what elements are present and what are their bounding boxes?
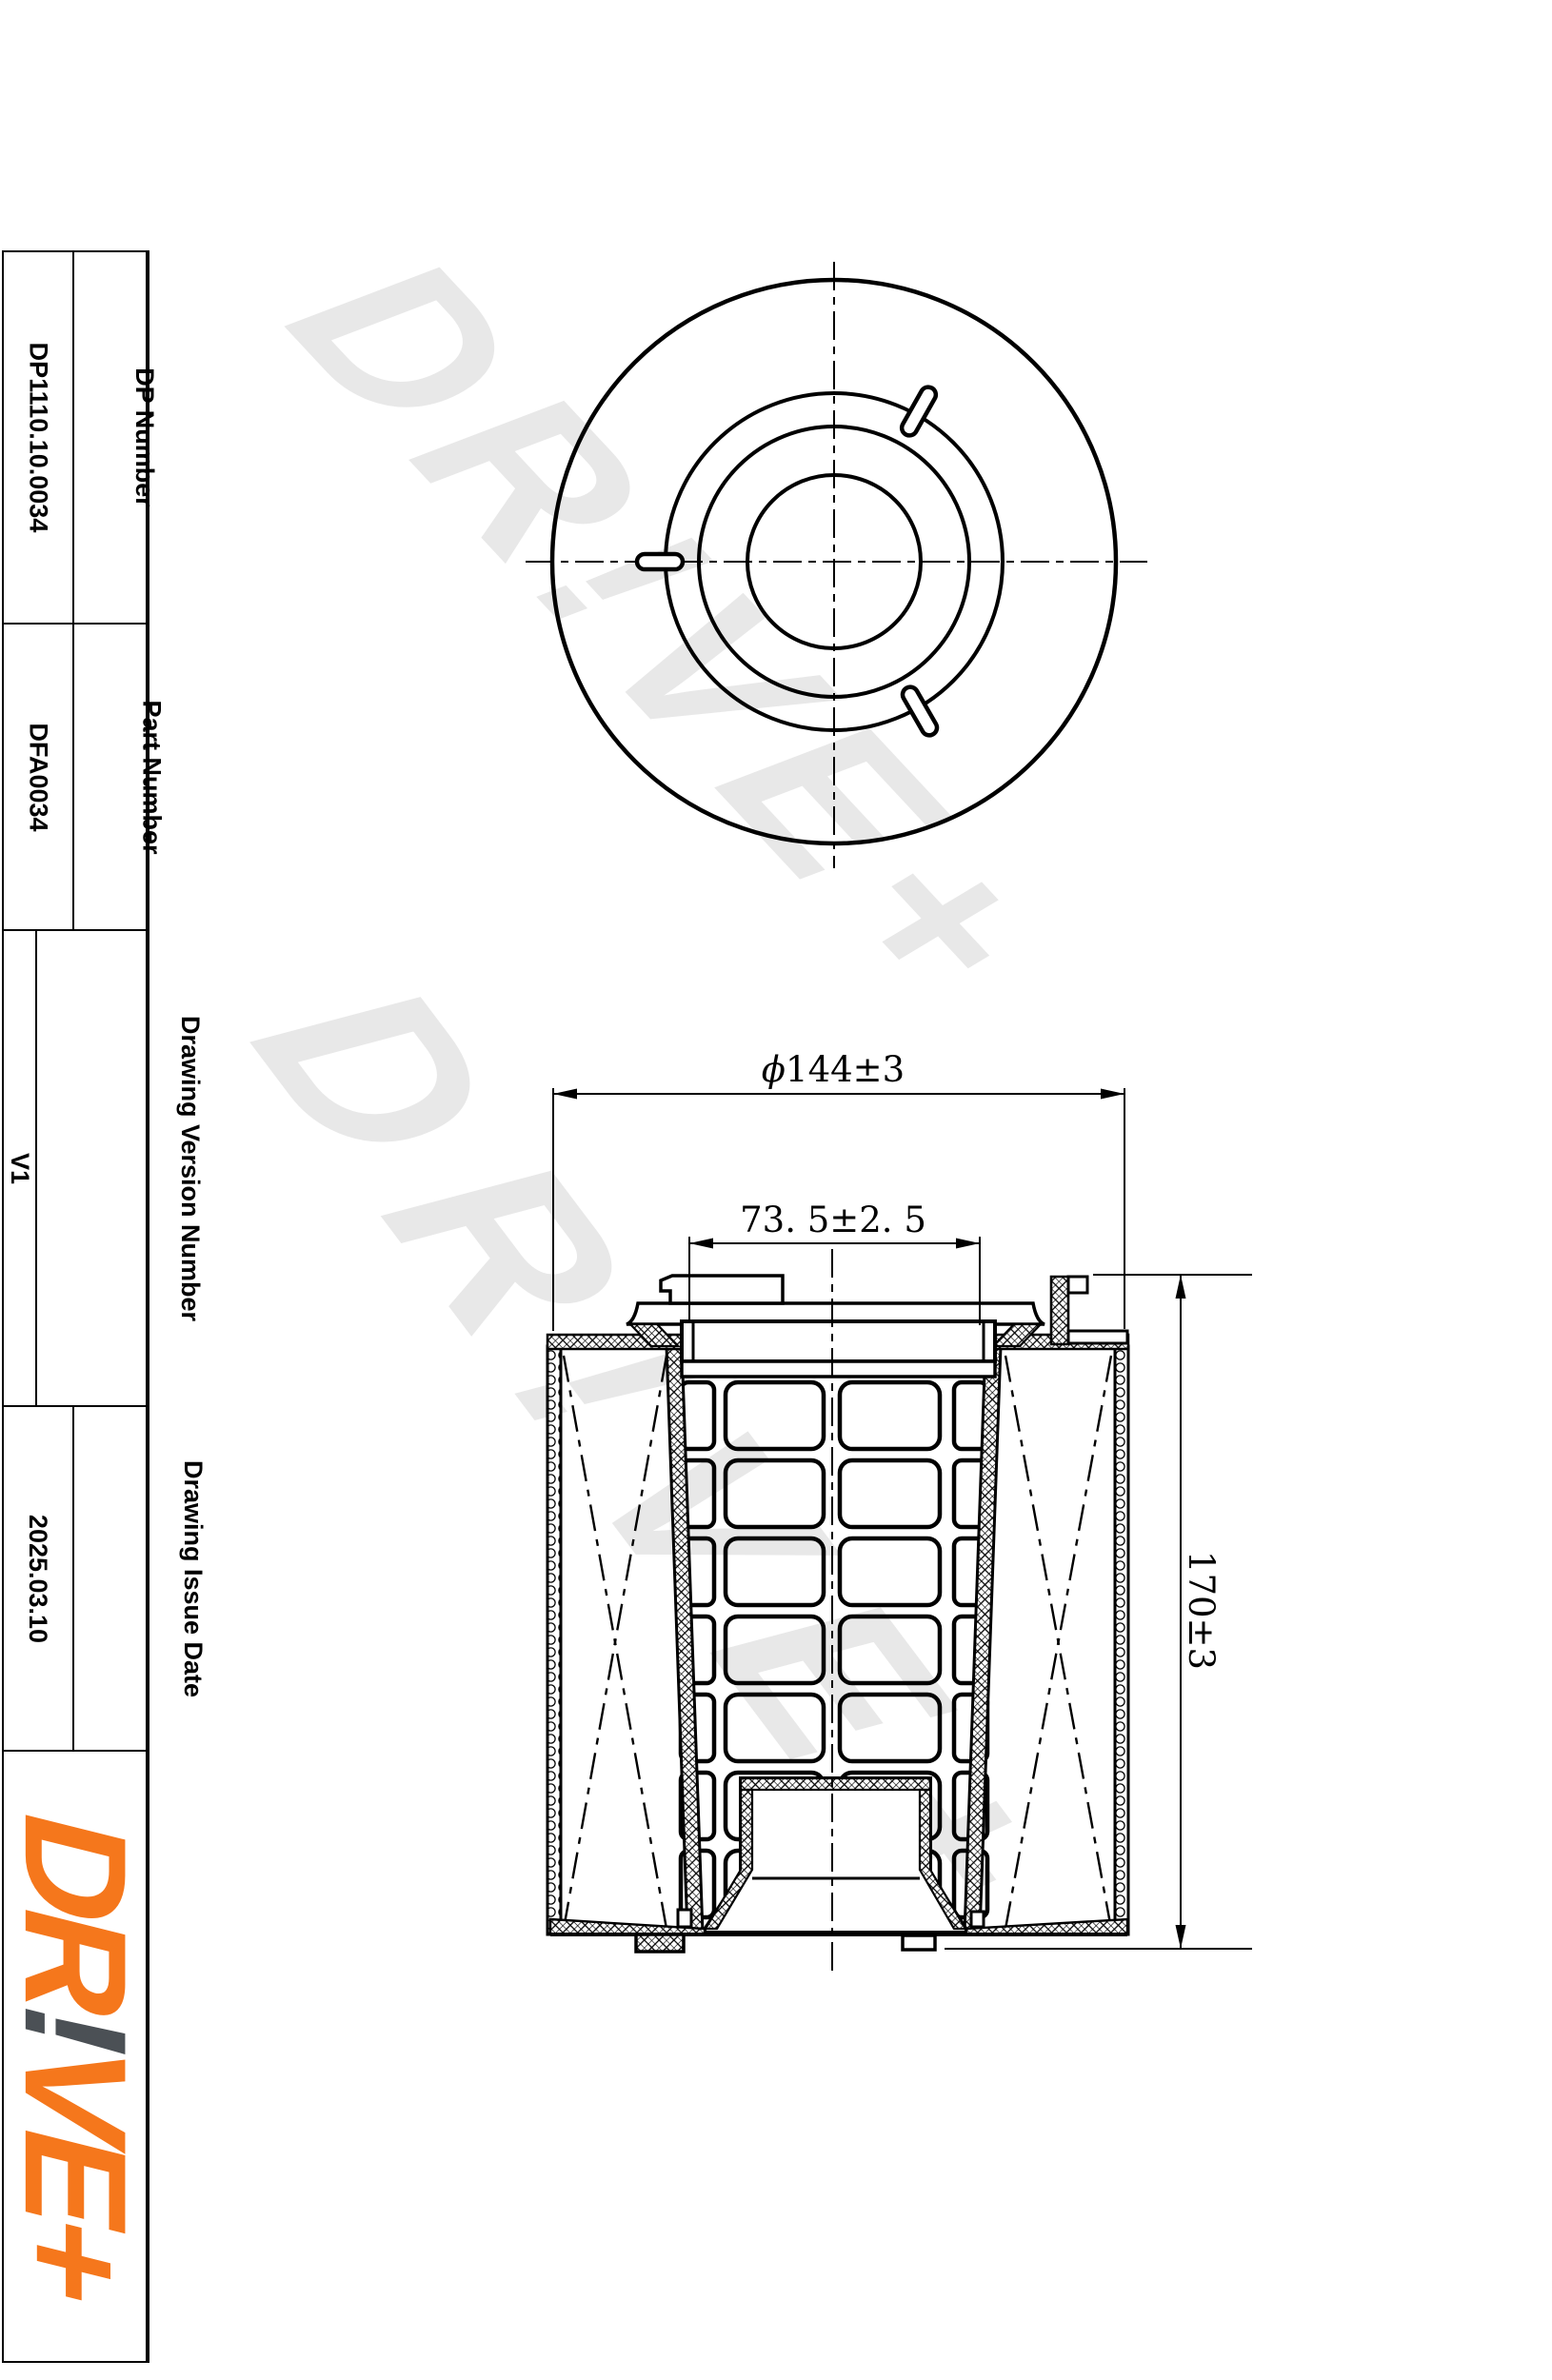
version-label-cell: Drawing Version Number — [37, 931, 343, 1405]
title-block-row-part-number: DFA0034 Part Number — [4, 625, 146, 931]
cage-grid-cell — [840, 1538, 940, 1605]
foot-right — [903, 1935, 935, 1950]
cage-grid-cell — [726, 1538, 824, 1605]
issue-date-label-cell: Drawing Issue Date — [74, 1407, 311, 1750]
center-cone — [703, 1778, 968, 1933]
cage-grid-cell — [840, 1382, 940, 1449]
title-block-row-version: V1 Drawing Version Number — [4, 931, 146, 1407]
cage-grid-cell — [726, 1616, 824, 1683]
part-number-value-cell: DFA0034 — [4, 625, 74, 929]
title-block-row-dp-number: DP1110.10.0034 DP Number — [4, 252, 146, 625]
part-number-label-cell: Part Number — [74, 625, 229, 929]
tab-upper-right — [899, 385, 939, 439]
cage-grid-cell — [840, 1695, 940, 1761]
dimension-height-label: 170±3 — [1125, 1562, 1278, 1657]
cage-notch-right — [971, 1912, 984, 1927]
foot-left — [636, 1934, 684, 1952]
title-block-row-issue-date: 2025.03.10 Drawing Issue Date — [4, 1407, 146, 1752]
cage-grid-cell — [726, 1695, 824, 1761]
bottom-band-right — [966, 1919, 1127, 1934]
tab-lower-right — [900, 684, 940, 738]
title-block: DP1110.10.0034 DP Number DFA0034 Part Nu… — [2, 250, 149, 2363]
inner-wall-right — [965, 1346, 1001, 1933]
brand-logo-cell: DR!VE+ — [4, 1752, 146, 2361]
dimension-diameter-label: ϕ144±3 — [619, 1049, 1047, 1090]
dp-number-label-cell: DP Number — [74, 252, 214, 623]
dimension-inner-width-label: 73. 5±2. 5 — [619, 1200, 1047, 1240]
tab-left — [637, 554, 683, 569]
cage-grid-cell — [840, 1616, 940, 1683]
drive-logo: DR!VE+ — [3, 1799, 148, 2313]
top-cap — [627, 1276, 1127, 1377]
issue-date-value-cell: 2025.03.10 — [4, 1407, 74, 1750]
version-value-cell: V1 — [4, 931, 37, 1405]
cage-grid-cell — [726, 1382, 824, 1449]
cage-grid-cell — [840, 1460, 940, 1527]
cage-notch-left — [678, 1910, 691, 1927]
dp-number-value-cell: DP1110.10.0034 — [4, 252, 74, 623]
phi-symbol: ϕ — [762, 1049, 786, 1090]
inner-wall-left — [667, 1346, 703, 1933]
top-view — [526, 262, 1147, 868]
cage-grid-cell — [726, 1460, 824, 1527]
outer-wall-left — [547, 1346, 561, 1934]
